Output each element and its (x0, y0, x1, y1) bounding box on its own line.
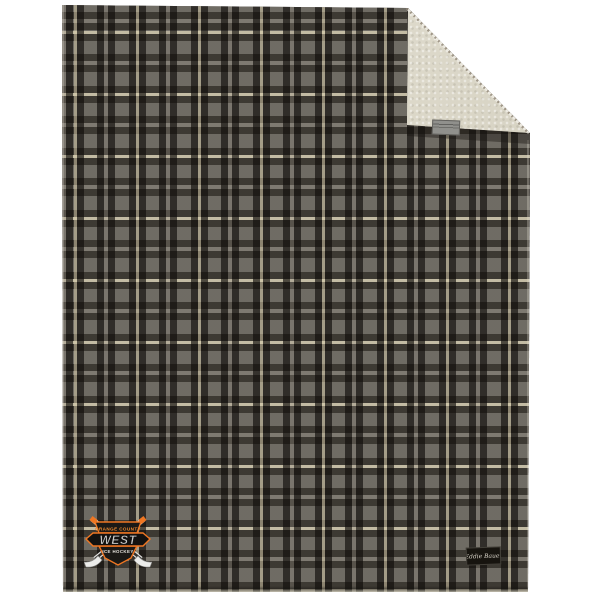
blanket: ORANGE COUNTY WEST ICE HOCKEY Eddie Baue… (0, 0, 600, 600)
plaid-front-fabric (0, 0, 600, 600)
fold-care-tag (432, 120, 461, 136)
stick-blade-right (134, 556, 152, 567)
stick-blade-left (84, 556, 102, 567)
left-edge-highlight (62, 5, 64, 592)
team-logo: ORANGE COUNTY WEST ICE HOCKEY (84, 514, 152, 568)
product-photo: ORANGE COUNTY WEST ICE HOCKEY Eddie Baue… (0, 0, 600, 600)
brand-label-text: Eddie Bauer (466, 552, 502, 560)
logo-team-name: WEST (99, 533, 137, 547)
right-edge-highlight (527, 140, 529, 592)
bottom-hem-stitch (62, 586, 528, 593)
brand-label: Eddie Bauer (466, 546, 502, 565)
logo-top-text: ORANGE COUNTY (95, 527, 141, 532)
logo-bottom-text: ICE HOCKEY (102, 549, 133, 554)
